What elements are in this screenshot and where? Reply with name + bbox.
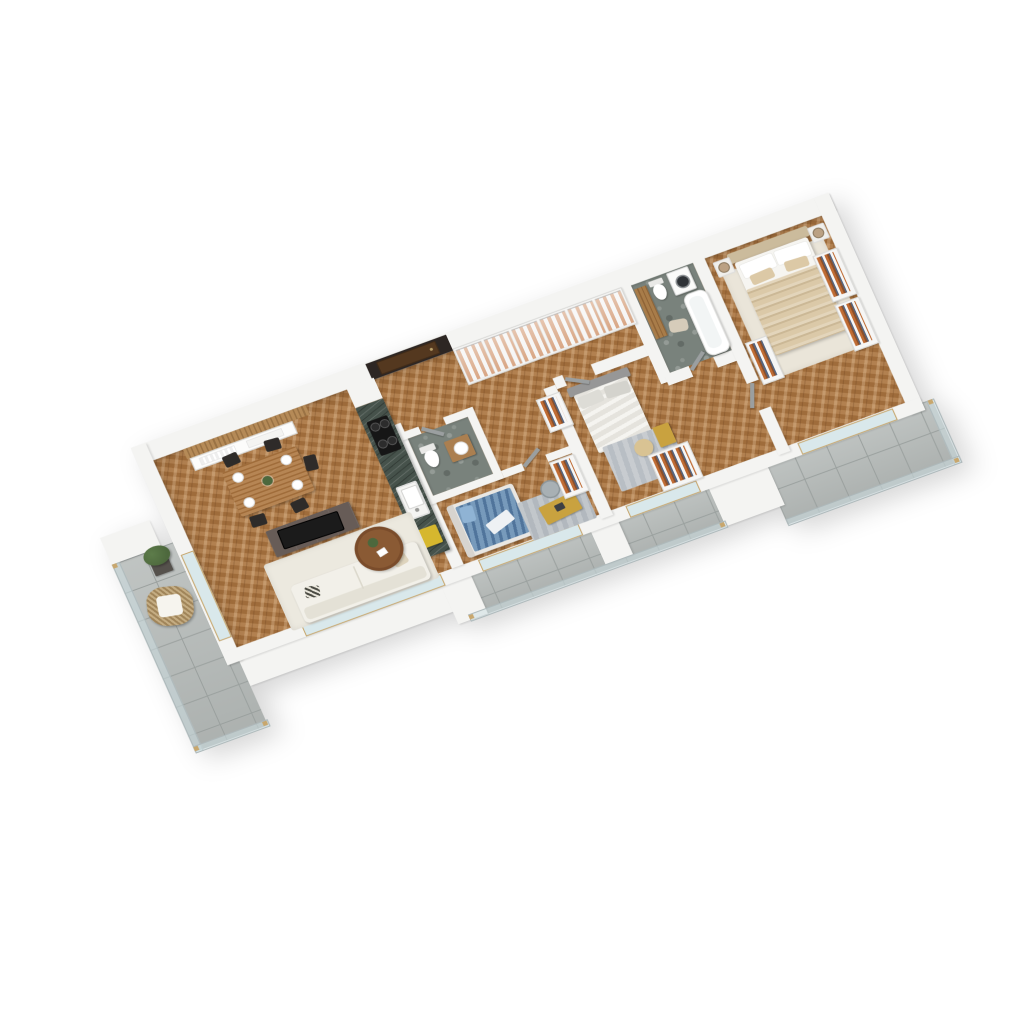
wicker-armchair-cushion [156,593,184,618]
middle-wardrobe-clothes [652,445,698,486]
entry-door-handle-icon [429,347,433,351]
wc-vanity-sink [451,439,470,457]
coffee-table-plant [366,536,380,549]
coffee-table-book [376,547,388,557]
master-lamp-icon [811,226,826,240]
middle-bed-pillow [576,389,605,410]
plate [290,478,305,492]
middle-bed-pillow [603,380,631,399]
kids-laptop [554,502,566,512]
door-master [750,383,754,408]
striped-pillow [304,585,320,598]
plate [279,453,294,467]
apartment-isometric-scene [35,146,990,794]
master-lamp-icon [717,261,732,275]
washing-machine-door-icon [673,273,692,291]
centerpiece-plant [261,475,275,488]
sofa-seat-split [353,566,364,589]
plate [242,496,257,510]
floorplan-render-canvas [0,0,1024,1024]
faucet-icon [414,507,420,512]
plate [231,471,246,485]
